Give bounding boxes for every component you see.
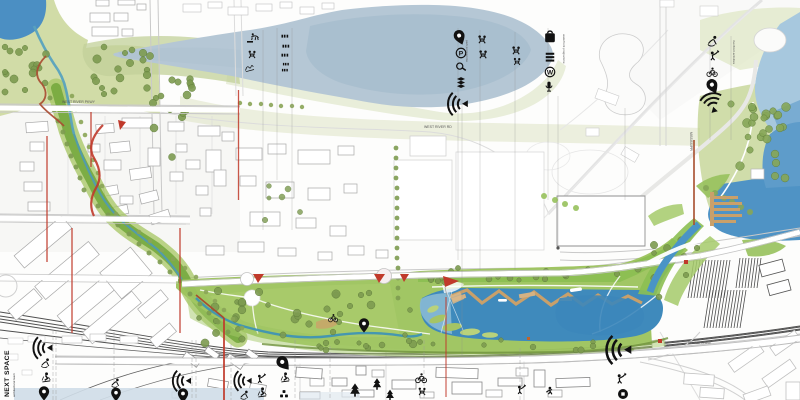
svg-text:MISSISSIPPI: MISSISSIPPI <box>689 132 693 151</box>
svg-text:WEST RIVER PKWY: WEST RIVER PKWY <box>62 100 96 104</box>
svg-text:architectural team: architectural team <box>12 373 16 397</box>
svg-text:riverfront activities: riverfront activities <box>732 40 736 65</box>
svg-text:NEXT SPACE: NEXT SPACE <box>4 350 11 397</box>
svg-text:waterfront programme: waterfront programme <box>562 34 566 64</box>
svg-text:park programme: park programme <box>465 40 469 62</box>
svg-text:WEST RIVER RD: WEST RIVER RD <box>424 125 452 129</box>
svg-text:HENNEPIN AVE: HENNEPIN AVE <box>688 341 711 345</box>
